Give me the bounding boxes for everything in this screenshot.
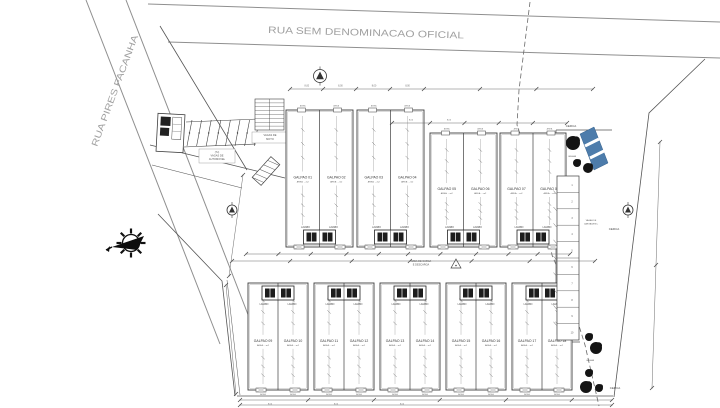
rear-area-note: AREA — [477, 128, 483, 131]
front-area-note: AREA — [392, 393, 398, 396]
guard-block-1 — [160, 116, 170, 126]
stall-dot — [189, 132, 190, 133]
compass-spike — [121, 250, 125, 254]
dim-node — [536, 89, 537, 90]
stall-dot — [198, 132, 199, 133]
front-area-note: AREA — [422, 393, 428, 396]
dim-node — [479, 89, 480, 90]
dim-node — [471, 261, 472, 262]
top-street-north-edge — [148, 4, 720, 22]
fence-label-bottom: CERCA — [610, 386, 621, 390]
rear-opening — [369, 108, 377, 112]
unit-label: GALPAO 03 — [365, 176, 384, 180]
guard-structure — [156, 113, 185, 152]
lavabo-label: LAVABO — [420, 303, 429, 306]
dim-node — [532, 123, 533, 124]
dim-value: 8,00 — [338, 86, 343, 88]
unit-area-note: AREA: ...m2 — [287, 344, 300, 347]
site-plan-drawing: RUA SEM DENOMINACAO OFICIAL RUA PIRES FA… — [0, 0, 720, 408]
rear-area-note: AREA — [333, 105, 339, 108]
lavabo-label: LAVABO — [288, 303, 297, 306]
dim-node — [389, 89, 390, 90]
rear-area-note: AREA — [444, 128, 450, 131]
stall-dot — [208, 132, 209, 133]
rear-area-note: AREA — [547, 128, 553, 131]
front-area-note: AREA — [356, 393, 362, 396]
unit-area-note: AREA: ...m2 — [510, 192, 523, 195]
dim-node — [652, 388, 653, 389]
dim-node — [290, 261, 291, 262]
unit-area-note: AREA: ...m2 — [485, 344, 498, 347]
stall-dot — [227, 132, 228, 133]
unit-area-note: AREA: ...m2 — [419, 344, 432, 347]
dim-node — [323, 89, 324, 90]
tree-blob — [599, 384, 603, 388]
unit-area-note: AREA: ...m2 — [323, 344, 336, 347]
lavabo-label: LAVABO — [354, 303, 363, 306]
dim-node — [346, 254, 347, 255]
dim-node — [243, 175, 244, 176]
dim-node — [240, 405, 241, 406]
dim-node — [660, 142, 661, 143]
guard-block-2 — [160, 127, 169, 135]
fence-label-mid: CERCA — [609, 227, 620, 231]
warning-triangle — [451, 259, 461, 268]
dim-node — [240, 400, 241, 401]
dim-node — [392, 123, 393, 124]
moto-label-line1: VAGAS DE — [263, 133, 276, 137]
moto-parking-grid: VAGAS DEMOTO — [252, 99, 288, 143]
dim-node — [439, 400, 440, 401]
rear-opening — [547, 131, 555, 135]
dim-node — [356, 89, 357, 90]
yard-label-line1: AREA DE CARGA — [411, 260, 432, 263]
dim-node — [612, 400, 613, 401]
site-plan-svg: RUA SEM DENOMINACAO OFICIAL RUA PIRES FA… — [0, 0, 720, 408]
lavabo-label: LAVABO — [543, 226, 552, 229]
dim-node — [226, 285, 227, 286]
dim-value: 8,00 — [372, 86, 377, 88]
lavabo-label: LAVABO — [486, 303, 495, 306]
unit-label: GALPAO 09 — [254, 339, 273, 343]
rear-area-note: AREA — [300, 105, 306, 108]
unit-label: GALPAO 07 — [507, 187, 526, 191]
front-area-note: AREA — [554, 393, 560, 396]
dim-node — [429, 123, 430, 124]
loading-label-line1: VAGAS DE — [586, 219, 597, 222]
moto-label-line2: MOTO — [266, 137, 274, 141]
dim-value: 8,00 — [447, 120, 452, 122]
stall-dot — [246, 132, 247, 133]
unit-label: GALPAO 11 — [320, 339, 338, 343]
dim-node — [656, 265, 657, 266]
unit-area-note: AREA: ...m2 — [330, 181, 343, 184]
unit-area-note: AREA: ...m2 — [389, 344, 402, 347]
dim-node — [440, 254, 441, 255]
left-street-east-edge — [126, 0, 254, 330]
dim-node — [373, 400, 374, 401]
unit-label: GALPAO 17 — [518, 339, 537, 343]
car-parking-label-line1: (7x) — [215, 150, 220, 154]
unit-area-note: AREA: ...m2 — [257, 344, 270, 347]
rear-area-note: AREA — [404, 105, 410, 108]
lavabo-label: LAVABO — [392, 303, 401, 306]
unit-label: GALPAO 08 — [540, 187, 559, 191]
dim-node — [476, 254, 477, 255]
dim-node — [464, 123, 465, 124]
unit-area-note: AREA: ...m2 — [551, 344, 564, 347]
compass-spike — [138, 250, 142, 254]
rear-opening — [334, 108, 342, 112]
west-boundary-inner — [227, 280, 240, 395]
compass-spike — [121, 233, 125, 237]
car-parking-label-line2: VAGAS DE — [210, 154, 223, 158]
top-row-units: GALPAO 01AREA: ...m2GALPAO 02AREA: ...m2… — [286, 105, 566, 250]
rear-opening — [405, 108, 413, 112]
unit-label: GALPAO 15 — [452, 339, 471, 343]
lavabo-label: LAVABO — [473, 226, 482, 229]
unit-label: GALPAO 06 — [471, 187, 490, 191]
unit-area-note: AREA: ...m2 — [521, 344, 534, 347]
grass-label-top: GRAMA — [568, 155, 577, 158]
unit-label: GALPAO 01 — [294, 176, 313, 180]
tree-blob — [572, 136, 580, 144]
dim-value: 8,00 — [305, 86, 310, 88]
left-street-name: RUA PIRES FACANHA — [90, 34, 141, 148]
dim-node — [505, 400, 506, 401]
unit-label: GALPAO 14 — [416, 339, 435, 343]
dim-node — [351, 261, 352, 262]
dim-node — [508, 254, 509, 255]
dim-node — [229, 276, 230, 277]
front-area-note: AREA — [326, 393, 332, 396]
tree-blob — [588, 163, 594, 169]
lavabo-label: LAVABO — [372, 226, 381, 229]
dim-node — [570, 254, 571, 255]
stall-top-line — [186, 119, 258, 122]
lavabo-label: LAVABO — [515, 226, 524, 229]
dim-node — [612, 405, 613, 406]
west-boundary-lower — [158, 214, 235, 396]
dim-node — [236, 394, 237, 395]
dim-node — [246, 254, 247, 255]
compass-spike — [138, 233, 142, 237]
grass-label-bottom: GRAMA — [586, 359, 595, 362]
rear-opening — [478, 131, 486, 135]
tree-blob — [585, 381, 592, 388]
blue-striped-band — [580, 127, 608, 170]
dim-node — [278, 254, 279, 255]
dim-node — [593, 89, 594, 90]
unit-label: GALPAO 16 — [482, 339, 501, 343]
yard-label-line2: E DESCARGA — [413, 264, 430, 267]
unit-area-note: AREA: ...m2 — [441, 192, 454, 195]
tree-blob — [577, 159, 581, 163]
dim-node — [537, 254, 538, 255]
lavabo-label: LAVABO — [400, 226, 409, 229]
unit-label: GALPAO 05 — [438, 187, 457, 191]
unit-area-note: AREA: ...m2 — [474, 192, 487, 195]
entry-curb-2 — [152, 165, 242, 188]
compass-rose — [106, 229, 146, 258]
dim-node — [408, 254, 409, 255]
dim-node — [308, 400, 309, 401]
dim-node — [232, 261, 233, 262]
top-street-name: RUA SEM DENOMINACAO OFICIAL — [268, 25, 464, 41]
rear-area-note: AREA — [371, 105, 377, 108]
front-area-note: AREA — [488, 393, 494, 396]
unit-label: GALPAO 13 — [386, 339, 405, 343]
top-street-south-edge — [168, 42, 720, 58]
rear-area-note: AREA — [514, 128, 520, 131]
unit-label: GALPAO 04 — [398, 176, 417, 180]
dim-node — [310, 254, 311, 255]
unit-area-note: AREA: ...m2 — [401, 181, 414, 184]
left-street-west-edge — [86, 0, 220, 344]
dim-node — [290, 89, 291, 90]
dim-node — [498, 123, 499, 124]
lavabo-label: LAVABO — [524, 303, 533, 306]
stripe-band-shape — [580, 127, 608, 170]
unit-label: GALPAO 02 — [327, 176, 346, 180]
lavabo-label: LAVABO — [260, 303, 269, 306]
front-area-note: AREA — [290, 393, 296, 396]
front-area-note: AREA — [524, 393, 530, 396]
rear-opening — [298, 108, 306, 112]
bottom-row-units: GALPAO 09AREA: ...m2GALPAO 10AREA: ...m2… — [248, 283, 572, 396]
unit-area-note: AREA: ...m2 — [543, 192, 556, 195]
lavabo-label: LAVABO — [326, 303, 335, 306]
lavabo-label: LAVABO — [458, 303, 467, 306]
loading-strip: 12345678910VAGAS DECARGA/DESC. — [554, 176, 599, 340]
tree-blob — [595, 342, 602, 349]
dim-node — [529, 261, 530, 262]
fence-label-top: CERCA — [566, 124, 577, 128]
unit-area-note: AREA: ...m2 — [455, 344, 468, 347]
tree-blob — [589, 369, 593, 373]
front-area-note: AREA — [458, 393, 464, 396]
dim-node — [378, 254, 379, 255]
unit-area-note: AREA: ...m2 — [353, 344, 366, 347]
car-parking-label-line3: AUTOMOVEL — [209, 157, 226, 161]
dim-node — [423, 89, 424, 90]
stall-dot — [218, 132, 219, 133]
unit-label: GALPAO 12 — [350, 339, 369, 343]
unit-area-note: AREA: ...m2 — [297, 181, 310, 184]
unit-area-note: AREA: ...m2 — [368, 181, 381, 184]
lavabo-label: LAVABO — [445, 226, 454, 229]
warning-dot — [455, 265, 457, 267]
rear-opening — [511, 131, 519, 135]
tree-blob — [589, 333, 593, 337]
dim-node — [571, 400, 572, 401]
lavabo-label: LAVABO — [301, 226, 310, 229]
unit-label: GALPAO 10 — [284, 339, 303, 343]
dim-line — [226, 285, 236, 394]
loading-label-line2: CARGA/DESC. — [584, 222, 599, 225]
front-area-note: AREA — [260, 393, 266, 396]
east-boundary — [614, 59, 705, 397]
stall-dot — [237, 132, 238, 133]
rear-opening — [442, 131, 450, 135]
dim-node — [595, 261, 596, 262]
dim-value: 8,00 — [405, 86, 410, 88]
lavabo-label: LAVABO — [329, 226, 338, 229]
